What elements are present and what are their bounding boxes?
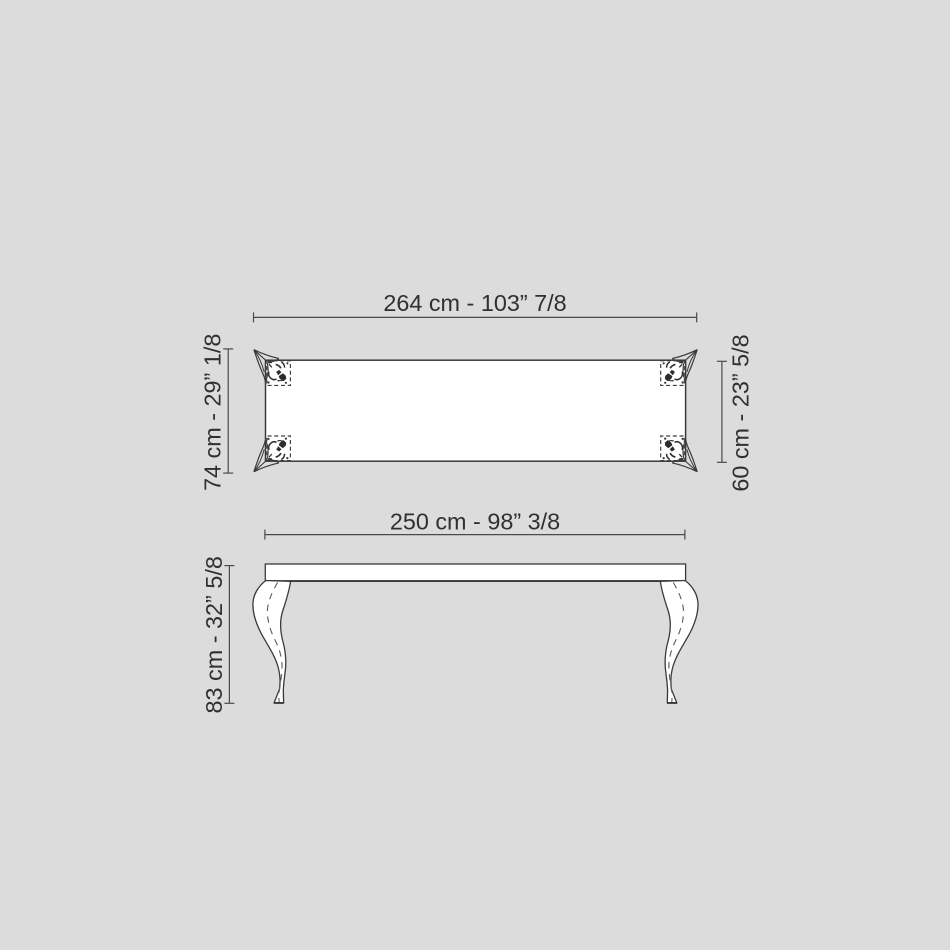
svg-text:264 cm - 103” 7/8: 264 cm - 103” 7/8 xyxy=(383,290,566,316)
svg-text:250 cm - 98” 3/8: 250 cm - 98” 3/8 xyxy=(390,509,560,535)
svg-text:74 cm - 29” 1/8: 74 cm - 29” 1/8 xyxy=(200,334,226,491)
svg-text:83 cm - 32” 5/8: 83 cm - 32” 5/8 xyxy=(201,556,227,713)
svg-text:60 cm - 23” 5/8: 60 cm - 23” 5/8 xyxy=(728,334,754,491)
